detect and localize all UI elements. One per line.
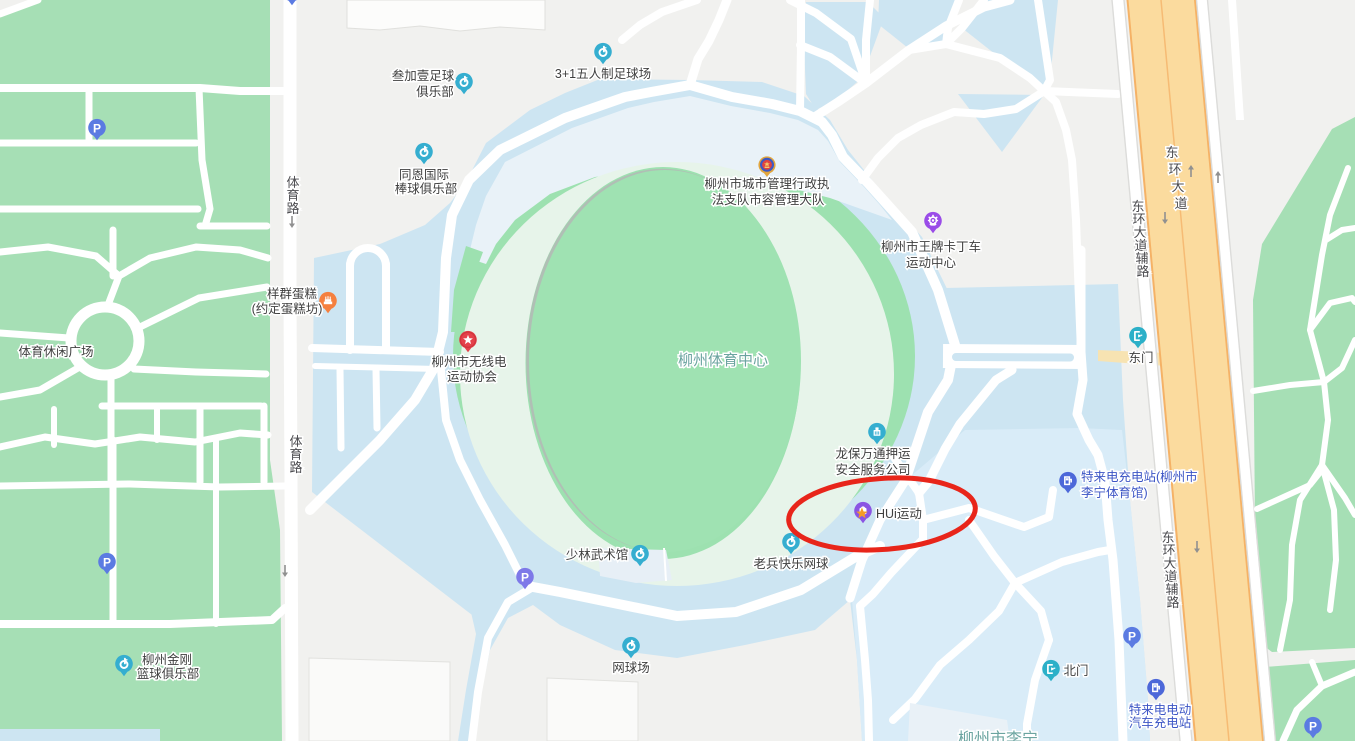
svg-text:(约定蛋糕坊): (约定蛋糕坊) xyxy=(252,301,323,316)
svg-text:路: 路 xyxy=(1166,595,1179,610)
svg-text:路: 路 xyxy=(286,201,299,216)
svg-text:李宁体育馆): 李宁体育馆) xyxy=(1081,485,1148,500)
svg-text:样群蛋糕: 样群蛋糕 xyxy=(267,286,318,301)
svg-text:柳州市王牌卡丁车: 柳州市王牌卡丁车 xyxy=(881,239,981,254)
svg-text:P: P xyxy=(521,570,529,584)
svg-text:特来电充电站(柳州市: 特来电充电站(柳州市 xyxy=(1081,469,1198,484)
svg-text:路: 路 xyxy=(289,460,302,475)
svg-text:柳州市无线电: 柳州市无线电 xyxy=(431,354,507,369)
svg-text:运动协会: 运动协会 xyxy=(447,369,498,384)
svg-text:HUi运动: HUi运动 xyxy=(876,507,922,521)
svg-text:东: 东 xyxy=(1165,145,1178,160)
svg-text:网球场: 网球场 xyxy=(612,661,650,675)
svg-text:运动中心: 运动中心 xyxy=(906,255,957,270)
svg-text:东门: 东门 xyxy=(1128,350,1153,365)
svg-text:汽车充电站: 汽车充电站 xyxy=(1129,715,1192,730)
svg-text:环: 环 xyxy=(1168,162,1181,177)
svg-text:大: 大 xyxy=(1171,179,1184,194)
svg-text:3+1五人制足球场: 3+1五人制足球场 xyxy=(555,67,651,81)
svg-text:同恩国际: 同恩国际 xyxy=(399,168,449,182)
svg-text:少林武术馆: 少林武术馆 xyxy=(566,547,629,562)
svg-text:法支队市容管理大队: 法支队市容管理大队 xyxy=(712,192,825,207)
svg-text:道: 道 xyxy=(1174,196,1187,211)
svg-text:棒球俱乐部: 棒球俱乐部 xyxy=(395,181,458,196)
svg-text:叁加壹足球: 叁加壹足球 xyxy=(392,68,455,83)
svg-text:龙保万通押运: 龙保万通押运 xyxy=(835,447,911,461)
svg-text:柳州市城市管理行政执: 柳州市城市管理行政执 xyxy=(704,176,830,191)
svg-text:北门: 北门 xyxy=(1063,663,1088,678)
svg-text:柳州金刚: 柳州金刚 xyxy=(142,652,192,667)
svg-text:特来电电动: 特来电电动 xyxy=(1129,702,1192,717)
svg-text:柳州体育中心: 柳州体育中心 xyxy=(678,352,768,369)
svg-text:俱乐部: 俱乐部 xyxy=(416,84,454,99)
svg-text:篮球俱乐部: 篮球俱乐部 xyxy=(137,666,200,681)
svg-text:体育休闲广场: 体育休闲广场 xyxy=(18,344,93,359)
svg-text:老兵快乐网球: 老兵快乐网球 xyxy=(753,557,829,571)
svg-text:路: 路 xyxy=(1136,264,1149,279)
svg-text:安全服务公司: 安全服务公司 xyxy=(835,462,910,477)
svg-text:柳州市李宁: 柳州市李宁 xyxy=(958,730,1038,741)
